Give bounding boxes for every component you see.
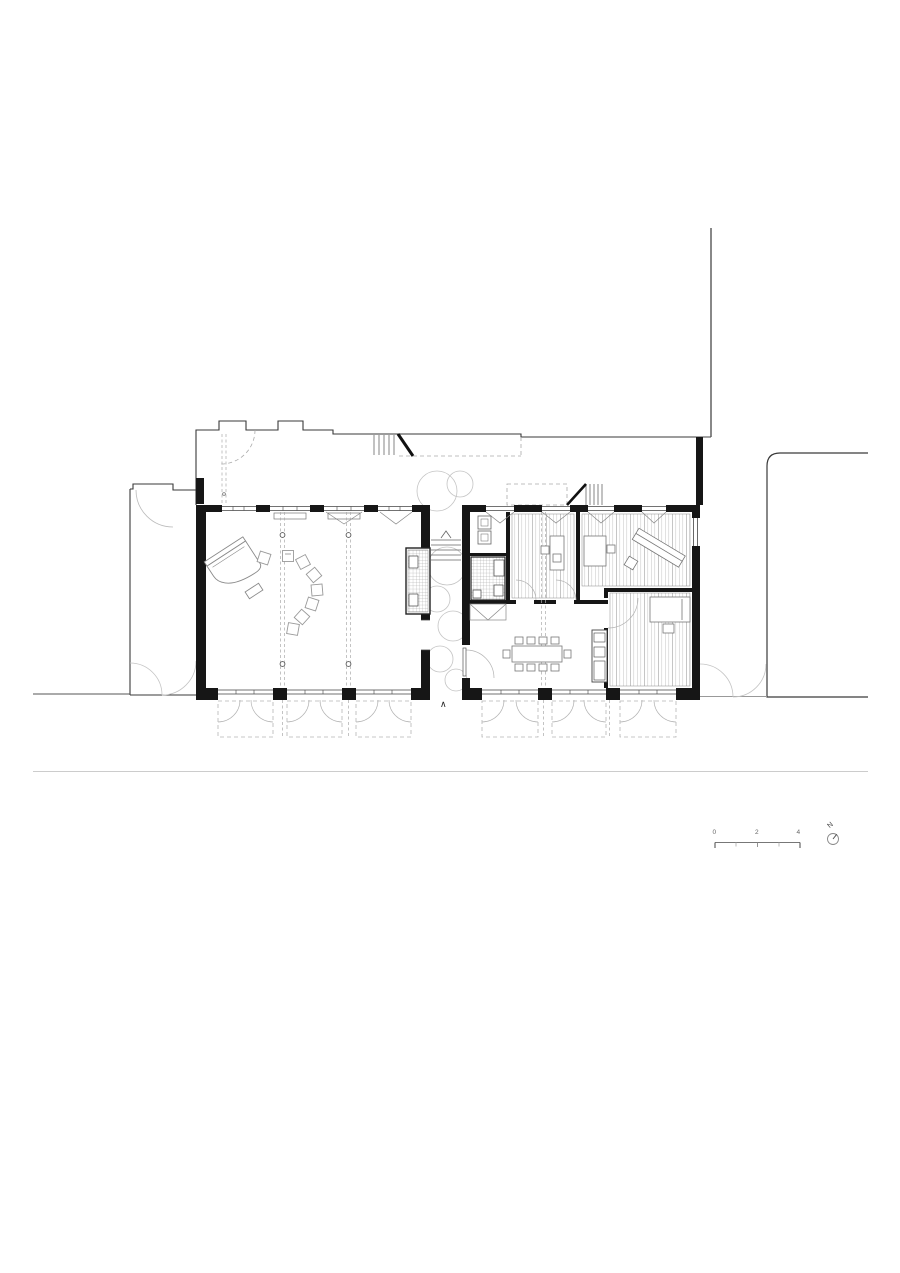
house-building	[462, 437, 703, 737]
rear-yard-stair	[374, 434, 521, 456]
house-bathroom	[471, 557, 505, 600]
floor-plan-drawing: ∧ 0 2 4 N	[0, 0, 900, 1273]
section-marker: ∧	[440, 699, 447, 709]
hall-building	[196, 505, 430, 737]
hall-wc	[406, 548, 430, 614]
hall-door-swings	[218, 700, 411, 722]
hall-planters	[218, 701, 411, 737]
dining-set	[503, 637, 571, 671]
hall-bottom-windows	[218, 690, 411, 694]
neighbour-building	[700, 453, 868, 697]
house-planters	[482, 701, 676, 737]
house-side-window	[694, 518, 698, 546]
audience-chairs	[257, 551, 323, 636]
piano-bench	[245, 583, 263, 598]
grand-piano	[204, 537, 263, 593]
courtyard-shrubs	[130, 661, 196, 695]
toilet	[494, 585, 503, 596]
utility-room	[478, 516, 491, 544]
bedroom1-floor	[512, 514, 574, 598]
entry-door-leaf	[463, 648, 466, 676]
bathtub	[494, 560, 504, 576]
sink	[473, 590, 481, 598]
right-shrubs	[700, 664, 766, 697]
courtyard-door-swing	[136, 490, 173, 527]
radiator	[274, 513, 306, 519]
window-opening-marks	[326, 512, 412, 524]
house-bottom-windows	[482, 690, 676, 694]
house-facade-swings	[482, 700, 676, 722]
rear-yard-outline	[196, 421, 696, 505]
survey-point	[223, 493, 226, 496]
north-label: N	[826, 821, 834, 830]
garden-wall-stub	[196, 478, 204, 504]
scale-label-2: 2	[755, 829, 759, 836]
scale-label-4: 4	[797, 829, 801, 836]
left-courtyard	[130, 484, 196, 695]
kitchen-cabinet	[594, 661, 605, 680]
cooktop	[594, 647, 605, 657]
scale-label-0: 0	[713, 829, 717, 836]
floor-plan-page: ∧ 0 2 4 N	[0, 0, 900, 1273]
site-context	[33, 228, 868, 772]
north-arrow: N	[826, 821, 838, 844]
passage-stair	[431, 531, 461, 560]
north-needle	[833, 834, 837, 839]
radiator	[328, 513, 360, 519]
sink	[409, 556, 418, 568]
scale-bar: 0 2 4	[713, 829, 801, 848]
toilet	[409, 594, 418, 606]
coat-closet	[470, 604, 506, 620]
kitchen-sink	[594, 633, 605, 642]
kitchen-counter	[592, 630, 607, 682]
house-rear-stair	[507, 484, 602, 505]
hall-side-door	[421, 620, 430, 650]
